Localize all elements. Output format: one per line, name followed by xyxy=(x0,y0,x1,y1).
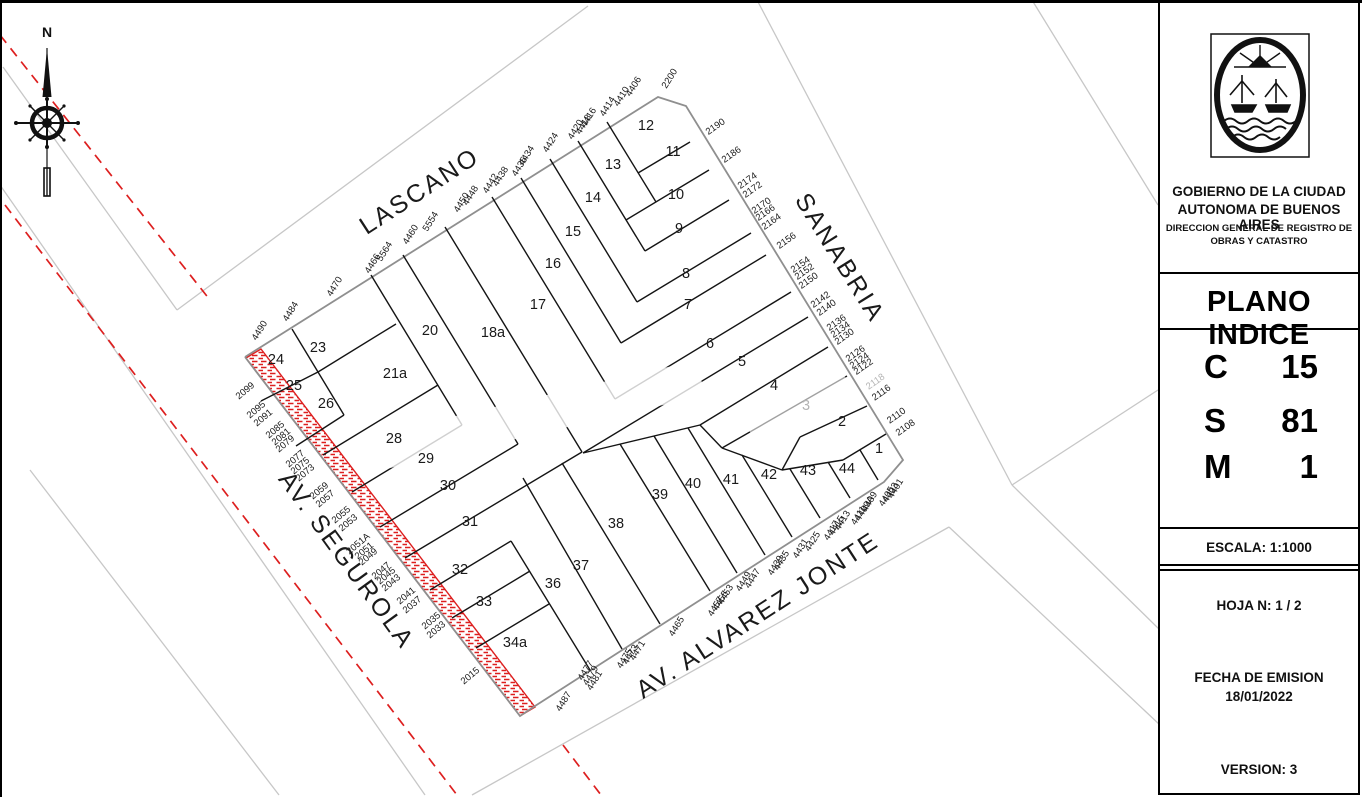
parcel-number: 2 xyxy=(838,414,846,430)
parcel-number: 9 xyxy=(675,221,683,237)
parcel-number: 33 xyxy=(476,594,492,610)
lot-line xyxy=(371,275,462,425)
address-number: 4471 xyxy=(628,639,649,663)
context-street-line xyxy=(30,470,279,795)
lot-line xyxy=(405,452,582,558)
parcel-number: 37 xyxy=(573,558,589,574)
code-value: 81 xyxy=(1281,402,1318,440)
plano-indice-page: 123456789101112131415161718a2021a2324252… xyxy=(0,0,1362,797)
code-key: C xyxy=(1204,348,1228,386)
parcel-number: 43 xyxy=(800,463,816,479)
parcel-number: 32 xyxy=(452,562,468,578)
parcel-number: 14 xyxy=(585,190,601,206)
address-number: 4434 xyxy=(517,144,538,168)
red-dashed-axis xyxy=(0,35,210,300)
page-left-border xyxy=(0,0,2,797)
parcel-number: 3 xyxy=(802,398,810,414)
parcel-number: 23 xyxy=(310,340,326,356)
lot-line xyxy=(521,178,621,343)
parcel-number: 6 xyxy=(706,336,714,352)
parcel-number: 5 xyxy=(738,354,746,370)
address-number: 4453 xyxy=(716,583,737,607)
parcel-number: 44 xyxy=(839,461,855,477)
buenos-aires-crest-icon xyxy=(1210,33,1310,158)
parcel-number: 41 xyxy=(723,472,739,488)
address-number: 4465 xyxy=(667,615,688,639)
lot-line xyxy=(550,159,637,302)
street-name: AV. SEGUROLA xyxy=(273,466,420,654)
document-title: PLANO INDICE xyxy=(1160,286,1358,352)
org-dept-line2: OBRAS Y CATASTRO xyxy=(1160,236,1358,247)
parcel-number: 11 xyxy=(665,144,680,160)
compass-north-label: N xyxy=(42,24,52,40)
address-number: 2099 xyxy=(234,380,257,402)
parcel-number: 34a xyxy=(503,635,528,651)
address-number: 4490 xyxy=(250,319,271,343)
lot-line xyxy=(782,437,800,470)
parcel-number: 38 xyxy=(608,516,624,532)
parcel-number: 36 xyxy=(545,576,561,592)
address-number: 2156 xyxy=(775,230,799,251)
lot-line xyxy=(654,436,737,573)
address-number: 4487 xyxy=(554,690,575,714)
issue-date-value: 18/01/2022 xyxy=(1160,689,1358,704)
issue-date-label: FECHA DE EMISION xyxy=(1160,670,1358,685)
address-number: 5564 xyxy=(375,240,396,264)
parcel-number: 26 xyxy=(318,396,334,412)
address-number: 4425 xyxy=(803,530,824,554)
panel-divider xyxy=(1160,527,1358,529)
cadastral-map: 123456789101112131415161718a2021a2324252… xyxy=(0,0,1160,797)
parcel-number: 8 xyxy=(682,266,690,282)
context-street-line xyxy=(3,67,177,310)
parcel-number: 40 xyxy=(685,476,701,492)
lot-line xyxy=(620,444,710,591)
lot-line xyxy=(700,425,722,448)
parcel-number: 17 xyxy=(530,297,546,313)
panel-divider xyxy=(1160,272,1358,274)
code-value: 1 xyxy=(1300,448,1318,486)
red-dashed-axis xyxy=(5,205,457,795)
compass-rose-icon: N xyxy=(14,24,80,196)
parcel-number: 13 xyxy=(605,157,621,173)
org-dept-line1: DIRECCION GENERAL DE REGISTRO DE xyxy=(1160,223,1358,234)
address-number: 2186 xyxy=(720,144,744,165)
context-street-line xyxy=(1012,485,1160,630)
code-value: 15 xyxy=(1281,348,1318,386)
address-number: 2015 xyxy=(459,665,482,687)
parcel-number: 31 xyxy=(462,514,478,530)
lot-line xyxy=(637,233,751,302)
lot-line xyxy=(645,200,729,251)
parcel-number: 21a xyxy=(383,366,408,382)
address-number: 4416 xyxy=(579,106,600,130)
parcel-number: 20 xyxy=(422,323,438,339)
address-number: 4401 xyxy=(886,477,907,501)
parcel-number: 39 xyxy=(652,487,668,503)
parcel-number: 25 xyxy=(286,378,302,394)
address-number: 4460 xyxy=(401,223,422,247)
context-street-line xyxy=(1032,0,1158,205)
parcel-number: 7 xyxy=(684,297,692,313)
watermark-blobs xyxy=(375,354,853,469)
red-hatched-strip xyxy=(246,349,535,716)
address-number: 4406 xyxy=(624,75,645,99)
parcel-number: 12 xyxy=(638,118,654,134)
code-key: S xyxy=(1204,402,1226,440)
parcel-number: 15 xyxy=(565,224,581,240)
lot-line xyxy=(318,324,396,372)
org-name-line1: GOBIERNO DE LA CIUDAD xyxy=(1160,184,1358,199)
street-name: LASCANO xyxy=(355,142,485,240)
hatched-strip xyxy=(246,349,535,716)
address-number: 4448 xyxy=(461,184,482,208)
lot-line xyxy=(583,425,700,453)
parcel-number: 4 xyxy=(770,378,778,394)
panel-divider xyxy=(1160,564,1358,566)
parcel-number: 18a xyxy=(481,325,506,341)
watermark-blob xyxy=(737,354,853,445)
parcel-number: 10 xyxy=(668,187,684,203)
context-street-line xyxy=(1012,390,1158,485)
version-text: VERSION: 3 xyxy=(1160,762,1358,777)
sheet-number: HOJA N: 1 / 2 xyxy=(1160,598,1358,613)
parcel-number: 29 xyxy=(418,451,434,467)
lot-line xyxy=(492,197,615,399)
scale-text: ESCALA: 1:1000 xyxy=(1160,540,1358,555)
parcel-number: 1 xyxy=(875,441,883,457)
address-number: 4438 xyxy=(491,165,512,189)
address-number: 4424 xyxy=(541,131,562,155)
lot-line xyxy=(430,541,511,590)
address-number: 4484 xyxy=(281,300,302,324)
code-key: M xyxy=(1204,448,1232,486)
red-dashed-axis xyxy=(563,745,601,795)
address-number: 5554 xyxy=(421,210,442,234)
lot-line xyxy=(562,463,660,624)
parcel-number: 42 xyxy=(761,467,777,483)
parcel-number: 16 xyxy=(545,256,561,272)
panel-divider xyxy=(1160,569,1358,571)
address-number: 2200 xyxy=(660,67,681,91)
panel-divider xyxy=(1160,328,1358,330)
title-block-panel: GOBIERNO DE LA CIUDAD AUTONOMA DE BUENOS… xyxy=(1158,0,1360,795)
parcel-number: 28 xyxy=(386,431,402,447)
parcel-number: 24 xyxy=(268,352,284,368)
street-name: AV. ALVAREZ JONTE xyxy=(631,526,884,704)
lot-line xyxy=(638,142,690,173)
address-number: 2190 xyxy=(704,116,728,137)
page-top-border xyxy=(0,0,1362,3)
context-street-line xyxy=(949,527,1160,725)
parcel-number: 30 xyxy=(440,478,456,494)
